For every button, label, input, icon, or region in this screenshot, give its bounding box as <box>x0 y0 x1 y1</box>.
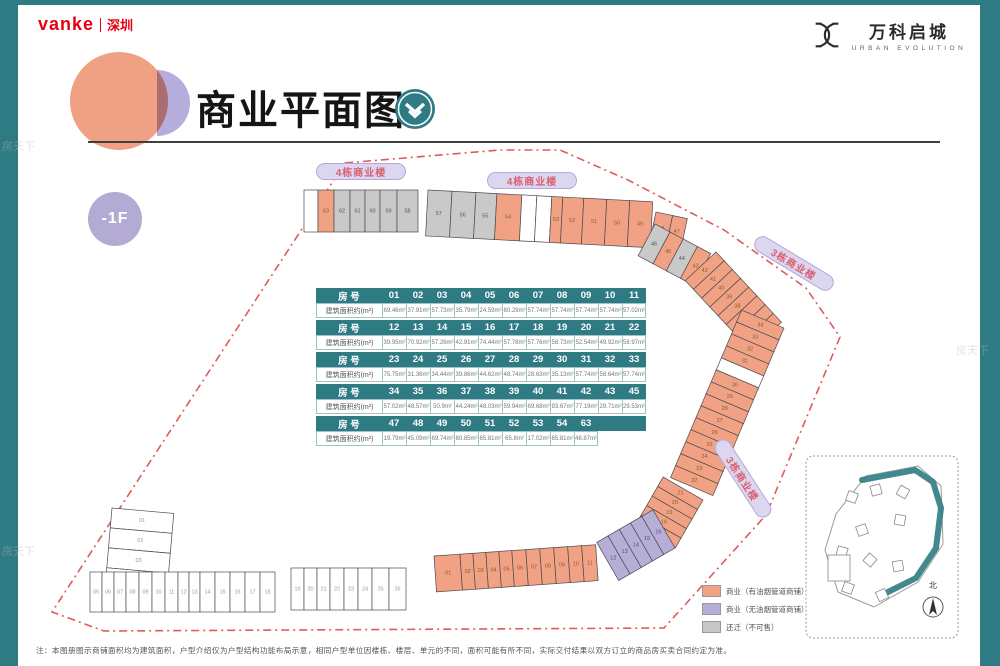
unit-no-cell: 26 <box>454 352 478 367</box>
unit-number: 15 <box>644 536 650 542</box>
unit-no-cell: 11 <box>622 288 646 303</box>
unit-number: 24 <box>701 454 707 460</box>
unit-number: 11 <box>587 561 593 567</box>
inset-building <box>894 514 906 526</box>
unit-area-cell: 49.92m² <box>598 335 622 350</box>
row-label-area: 建筑面积约(m²) <box>316 335 382 350</box>
unit-area-cell: 58.73m² <box>550 335 574 350</box>
unit-number: 12 <box>610 556 616 562</box>
row-label-area: 建筑面积约(m²) <box>316 431 382 446</box>
unit-area-cell: 28.63m² <box>526 367 550 382</box>
unit-number: 18 <box>264 589 270 595</box>
unit-area-cell: 57.74m² <box>574 367 598 382</box>
legend-label: 商业（无油烟管道商铺） <box>726 604 809 615</box>
unit-number: 05 <box>93 589 99 595</box>
unit-number: 20 <box>672 500 678 506</box>
unit-number: 27 <box>717 418 723 424</box>
unit-number: 52 <box>569 218 575 224</box>
unit-number: 15 <box>219 589 225 595</box>
legend-swatch <box>702 603 721 615</box>
unit-no-cell: 01 <box>382 288 406 303</box>
unit-no-cell: 31 <box>574 352 598 367</box>
unit-number: 03 <box>478 568 484 574</box>
unit-area-cell: 50.9m² <box>430 399 454 414</box>
unit-number: 02 <box>137 538 143 544</box>
unit-no-cell: 23 <box>382 352 406 367</box>
unit-number: 08 <box>545 564 551 570</box>
area-table: 房 号0102030405060708091011建筑面积约(m²)69.46m… <box>316 288 646 448</box>
unit-area-cell: 70.92m² <box>406 335 430 350</box>
unit-no-cell: 54 <box>550 416 574 431</box>
unit-number: 13 <box>191 589 197 595</box>
unit-no-cell: 03 <box>430 288 454 303</box>
unit-number: 22 <box>334 586 340 592</box>
legend-item: 还迁（不可售） <box>702 621 809 633</box>
unit-area-cell: 69.68m² <box>526 399 550 414</box>
unit-area-cell: 48.03m² <box>478 399 502 414</box>
unit-area-cell: 60.29m² <box>502 303 526 318</box>
unit-no-cell: 35 <box>406 384 430 399</box>
unit-area-cell: 58.97m² <box>622 335 646 350</box>
unit-no-cell: 43 <box>598 384 622 399</box>
unit-number: 60 <box>369 208 375 214</box>
unit-no-cell: 41 <box>550 384 574 399</box>
unit-number: 19 <box>666 510 672 516</box>
unit-area-cell: 29.53m² <box>622 399 646 414</box>
unit-number: 42 <box>702 268 708 274</box>
row-label-no: 房 号 <box>316 416 382 431</box>
unit-number: 16 <box>234 589 240 595</box>
unit-number: 09 <box>559 563 565 569</box>
inset-building <box>870 484 882 496</box>
plan-strip-topMidRow: 575655545352515049 <box>426 190 653 248</box>
unit-area-cell: 52.54m² <box>574 335 598 350</box>
unit-area-cell: 57.74m² <box>550 303 574 318</box>
unit-area-cell: 57.74m² <box>622 367 646 382</box>
unit-number: 09 <box>142 589 148 595</box>
unit-area-cell: 48.57m² <box>406 399 430 414</box>
unit-no-cell: 30 <box>550 352 574 367</box>
unit-area-cell: 57.74m² <box>574 303 598 318</box>
unit-area-cell: 39.86m² <box>454 367 478 382</box>
unit-number: 14 <box>204 589 210 595</box>
unit-number: 61 <box>354 208 360 214</box>
unit-no-cell: 25 <box>430 352 454 367</box>
unit-area-cell: 44.24m² <box>454 399 478 414</box>
unit-area-cell: 35.13m² <box>550 367 574 382</box>
inset-building <box>892 560 904 572</box>
unit-number: 63 <box>323 208 329 214</box>
unit-number: 25 <box>377 586 383 592</box>
unit-number: 38 <box>734 303 740 309</box>
unit-number: 07 <box>117 589 123 595</box>
unit-no-cell: 14 <box>430 320 454 335</box>
unit-area-cell: 74.44m² <box>478 335 502 350</box>
unit-no-cell: 10 <box>598 288 622 303</box>
unit-area-cell: 44.62m² <box>478 367 502 382</box>
unit-number: 30 <box>732 382 738 388</box>
table-header-row: 房 号2324252627282930313233 <box>316 352 646 367</box>
unit-no-cell: 63 <box>574 416 598 431</box>
plan-strip-bottomLeftRow2: 1920212223242526 <box>291 568 406 610</box>
unit-area-cell: 69.74m² <box>430 431 454 446</box>
unit-number: 40 <box>718 286 724 292</box>
unit-number: 49 <box>637 222 643 228</box>
unit-no-cell: 21 <box>598 320 622 335</box>
unit-no-cell: 45 <box>622 384 646 399</box>
unit-no-cell: 53 <box>526 416 550 431</box>
row-label-area: 建筑面积约(m²) <box>316 399 382 414</box>
table-area-row: 建筑面积约(m²)39.95m²70.92m²57.26m²42.91m²74.… <box>316 335 646 350</box>
unit-number: 06 <box>517 565 523 571</box>
unit-number: 54 <box>505 215 511 221</box>
unit-no-cell: 34 <box>382 384 406 399</box>
compass-north-label: 北 <box>929 581 937 590</box>
unit-no-cell: 51 <box>478 416 502 431</box>
unit-area-cell: 48.87m² <box>574 431 598 446</box>
unit-no-cell: 50 <box>454 416 478 431</box>
unit-number: 51 <box>591 219 597 225</box>
unit-area-cell: 37.91m² <box>406 303 430 318</box>
unit-no-cell: 48 <box>406 416 430 431</box>
unit-no-cell: 29 <box>526 352 550 367</box>
unit-number: 58 <box>404 208 410 214</box>
unit-number: 55 <box>482 213 488 219</box>
unit-area-cell: 57.74m² <box>598 303 622 318</box>
unit-no-cell: 04 <box>454 288 478 303</box>
unit-area-cell: 75.75m² <box>382 367 406 382</box>
unit-number: 32 <box>747 346 753 352</box>
unit-number: 44 <box>679 256 685 262</box>
legend-label: 商业（有油烟管道商铺） <box>726 586 809 597</box>
unit-no-cell: 09 <box>574 288 598 303</box>
row-label-no: 房 号 <box>316 384 382 399</box>
unit-cell <box>534 196 551 243</box>
unit-number: 57 <box>436 211 442 217</box>
unit-no-cell: 40 <box>526 384 550 399</box>
unit-number: 04 <box>491 567 497 573</box>
unit-area-cell: 31.36m² <box>406 367 430 382</box>
plan-strip-bottomLeftRow1: 0506070809101112131415161718 <box>90 572 275 612</box>
row-label-area: 建筑面积约(m²) <box>316 303 382 318</box>
unit-no-cell: 06 <box>502 288 526 303</box>
table-header-row: 房 号474849505152535463 <box>316 416 646 431</box>
unit-number: 22 <box>691 478 697 484</box>
unit-number: 39 <box>726 294 732 300</box>
unit-number: 01 <box>445 571 451 577</box>
unit-no-cell: 13 <box>406 320 430 335</box>
inset-building <box>828 555 850 581</box>
unit-area-cell: 45.09m² <box>406 431 430 446</box>
unit-number: 50 <box>614 220 620 226</box>
unit-no-cell: 08 <box>550 288 574 303</box>
unit-area-cell: 24.59m² <box>478 303 502 318</box>
row-label-area: 建筑面积约(m²) <box>316 367 382 382</box>
unit-number: 02 <box>465 569 471 575</box>
unit-area-cell: 65.81m² <box>550 431 574 446</box>
unit-no-cell: 12 <box>382 320 406 335</box>
unit-number: 24 <box>362 586 368 592</box>
unit-no-cell: 02 <box>406 288 430 303</box>
plan-strip-topLeftRow: 636261605958 <box>304 190 418 232</box>
unit-number: 33 <box>752 334 758 340</box>
inset-keymap: 北 <box>806 456 958 638</box>
unit-area-cell: 34.44m² <box>430 367 454 382</box>
unit-number: 12 <box>180 589 186 595</box>
unit-no-cell: 33 <box>622 352 646 367</box>
unit-area-cell: 19.79m² <box>382 431 406 446</box>
unit-number: 43 <box>692 263 698 269</box>
unit-number: 25 <box>706 442 712 448</box>
unit-area-cell: 59.94m² <box>502 399 526 414</box>
legend-label: 还迁（不可售） <box>726 622 779 633</box>
unit-number: 46 <box>651 241 657 247</box>
unit-number: 45 <box>665 249 671 255</box>
unit-number: 26 <box>394 586 400 592</box>
unit-number: 31 <box>742 358 748 364</box>
unit-area-cell: 57.26m² <box>430 335 454 350</box>
legend-item: 商业（有油烟管道商铺） <box>702 585 809 597</box>
legend: 商业（有油烟管道商铺）商业（无油烟管道商铺）还迁（不可售） <box>702 585 809 639</box>
unit-area-cell: 58.64m² <box>598 367 622 382</box>
unit-number: 20 <box>307 586 313 592</box>
unit-no-cell: 32 <box>598 352 622 367</box>
table-header-row: 房 号1213141516171819202122 <box>316 320 646 335</box>
unit-no-cell: 39 <box>502 384 526 399</box>
unit-no-cell: 47 <box>382 416 406 431</box>
unit-area-cell: 42.91m² <box>454 335 478 350</box>
unit-number: 23 <box>348 586 354 592</box>
unit-number: 59 <box>385 208 391 214</box>
unit-no-cell: 05 <box>478 288 502 303</box>
legend-swatch <box>702 621 721 633</box>
unit-cell <box>304 190 318 232</box>
unit-no-cell: 24 <box>406 352 430 367</box>
unit-number: 56 <box>460 212 466 218</box>
unit-area-cell: 57.73m² <box>430 303 454 318</box>
unit-number: 21 <box>320 586 326 592</box>
table-header-row: 房 号3435363738394041424345 <box>316 384 646 399</box>
unit-number: 07 <box>531 565 537 571</box>
row-label-no: 房 号 <box>316 352 382 367</box>
unit-number: 16 <box>655 530 661 536</box>
unit-no-cell: 18 <box>526 320 550 335</box>
unit-area-cell: 48.74m² <box>502 367 526 382</box>
unit-area-cell: 17.02m² <box>526 431 550 446</box>
row-label-no: 房 号 <box>316 288 382 303</box>
unit-area-cell: 65.81m² <box>478 431 502 446</box>
unit-area-cell: 77.19m² <box>574 399 598 414</box>
unit-number: 29 <box>727 394 733 400</box>
unit-area-cell: 57.02m² <box>622 303 646 318</box>
unit-number: 13 <box>622 549 628 555</box>
unit-area-cell: 69.46m² <box>382 303 406 318</box>
unit-area-cell: 39.95m² <box>382 335 406 350</box>
unit-area-cell: 93.67m² <box>550 399 574 414</box>
unit-number: 34 <box>757 322 763 328</box>
unit-no-cell: 38 <box>478 384 502 399</box>
unit-area-cell: 57.74m² <box>526 303 550 318</box>
table-area-row: 建筑面积约(m²)75.75m²31.36m²34.44m²39.86m²44.… <box>316 367 646 382</box>
unit-no-cell: 20 <box>574 320 598 335</box>
table-area-row: 建筑面积约(m²)19.79m²45.09m²69.74m²80.85m²65.… <box>316 431 646 446</box>
unit-number: 03 <box>135 558 141 564</box>
unit-number: 53 <box>553 217 559 223</box>
unit-cell <box>519 195 536 242</box>
unit-number: 01 <box>139 518 145 524</box>
unit-number: 17 <box>249 589 255 595</box>
unit-area-cell: 57.78m² <box>502 335 526 350</box>
unit-no-cell: 17 <box>502 320 526 335</box>
legend-item: 商业（无油烟管道商铺） <box>702 603 809 615</box>
unit-number: 08 <box>129 589 135 595</box>
unit-number: 62 <box>339 208 345 214</box>
unit-no-cell: 42 <box>574 384 598 399</box>
unit-no-cell: 15 <box>454 320 478 335</box>
building-label-4: 4栋商业楼 <box>487 172 577 189</box>
unit-number: 26 <box>712 430 718 436</box>
unit-area-cell: 65.8m² <box>502 431 526 446</box>
unit-area-cell: 29.71m² <box>598 399 622 414</box>
unit-no-cell: 36 <box>430 384 454 399</box>
unit-number: 23 <box>696 466 702 472</box>
unit-no-cell: 19 <box>550 320 574 335</box>
legend-swatch <box>702 585 721 597</box>
unit-number: 19 <box>294 586 300 592</box>
unit-number: 41 <box>710 277 716 283</box>
unit-number: 11 <box>169 589 175 595</box>
plan-strip-bottomMidRow: 0102030405060708091011 <box>434 545 598 592</box>
unit-no-cell: 52 <box>502 416 526 431</box>
building-label-4: 4栋商业楼 <box>316 163 406 180</box>
unit-no-cell: 28 <box>502 352 526 367</box>
unit-number: 21 <box>677 491 683 497</box>
unit-no-cell: 22 <box>622 320 646 335</box>
unit-area-cell: 57.02m² <box>382 399 406 414</box>
unit-no-cell: 16 <box>478 320 502 335</box>
unit-no-cell: 49 <box>430 416 454 431</box>
unit-number: 06 <box>105 589 111 595</box>
unit-no-cell: 27 <box>478 352 502 367</box>
unit-number: 14 <box>633 543 639 549</box>
unit-number: 28 <box>722 406 728 412</box>
unit-no-cell: 37 <box>454 384 478 399</box>
row-label-no: 房 号 <box>316 320 382 335</box>
unit-no-cell: 07 <box>526 288 550 303</box>
unit-number: 10 <box>573 562 579 568</box>
unit-area-cell: 35.79m² <box>454 303 478 318</box>
table-area-row: 建筑面积约(m²)69.46m²37.91m²57.73m²35.79m²24.… <box>316 303 646 318</box>
brochure-page: 房天下 房天下 房天下 vanke 深圳 万科启城 URBAN EVOLUTIO… <box>0 0 1000 666</box>
table-area-row: 建筑面积约(m²)57.02m²48.57m²50.9m²44.24m²48.0… <box>316 399 646 414</box>
unit-area-cell: 80.85m² <box>454 431 478 446</box>
unit-number: 10 <box>155 589 161 595</box>
footnote: 注：本图册图示商铺面积均为建筑面积，户型介绍仅为户型结构功能布局示意，相同户型单… <box>36 645 976 656</box>
table-header-row: 房 号0102030405060708091011 <box>316 288 646 303</box>
unit-area-cell: 57.76m² <box>526 335 550 350</box>
unit-number: 05 <box>504 566 510 572</box>
